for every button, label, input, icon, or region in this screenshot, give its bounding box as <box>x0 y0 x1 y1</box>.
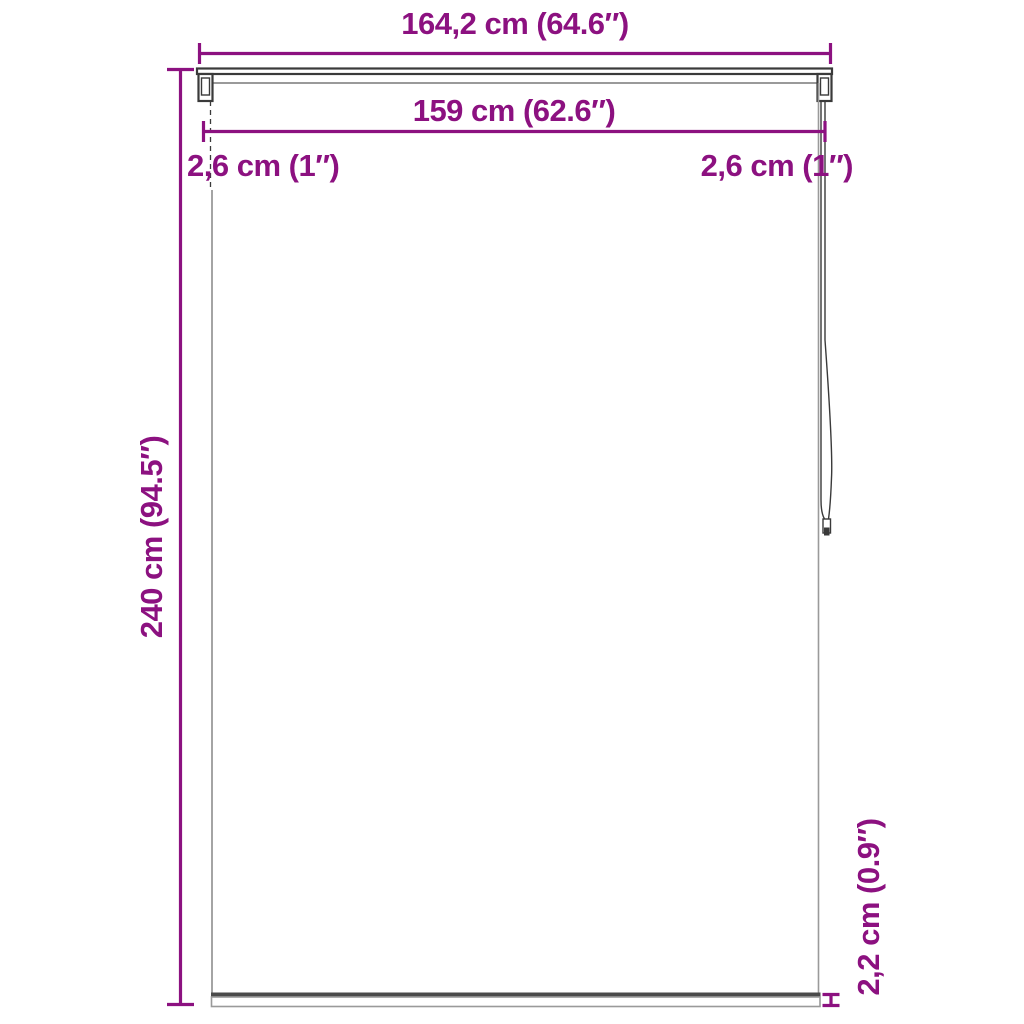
height-dimension-line <box>167 70 194 1005</box>
bottom-bar-body <box>212 997 821 1007</box>
left-offset-label: 2,6 cm (1″) <box>187 148 339 184</box>
total-width-dimension-line <box>200 43 831 64</box>
roller-blind-dimension-diagram: 164,2 cm (64.6″) 159 cm (62.6″) 2,6 cm (… <box>0 0 1024 1024</box>
pull-cord-clasp-tip <box>824 528 830 536</box>
right-offset-label: 2,6 cm (1″) <box>701 148 853 184</box>
total-width-label: 164,2 cm (64.6″) <box>401 6 628 42</box>
height-label: 240 cm (94.5″) <box>134 436 170 639</box>
dimension-lines <box>167 43 840 1006</box>
bottom-bar-dimension-line <box>823 995 840 1006</box>
top-rail <box>197 69 832 75</box>
fabric-width-label: 159 cm (62.6″) <box>413 93 616 129</box>
roller-blind-illustration <box>197 69 832 1007</box>
bottom-bar-height-label: 2,2 cm (0.9″) <box>851 818 887 995</box>
